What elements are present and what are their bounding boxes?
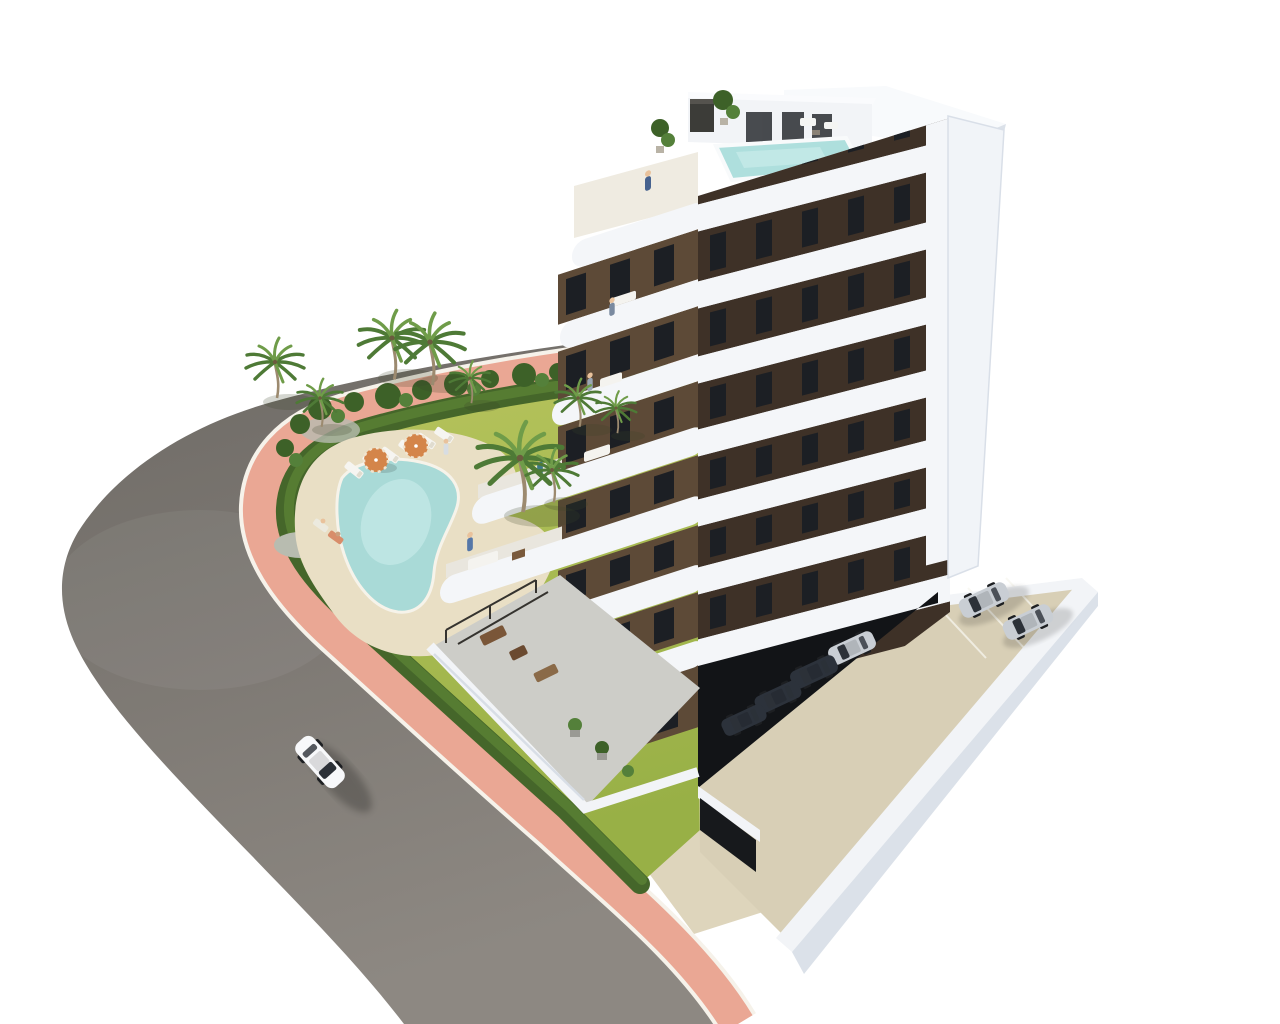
penthouse-openings bbox=[746, 112, 832, 142]
sunbather bbox=[321, 519, 326, 524]
sunbather bbox=[336, 532, 341, 537]
architectural-render bbox=[0, 0, 1280, 1024]
person-roof bbox=[645, 169, 651, 191]
person-poolside bbox=[444, 439, 449, 455]
person-balcony bbox=[587, 372, 592, 392]
render-canvas bbox=[0, 0, 1280, 1024]
roof-vent bbox=[690, 104, 714, 132]
person-balcony bbox=[609, 297, 614, 317]
person-terrace bbox=[467, 531, 473, 552]
